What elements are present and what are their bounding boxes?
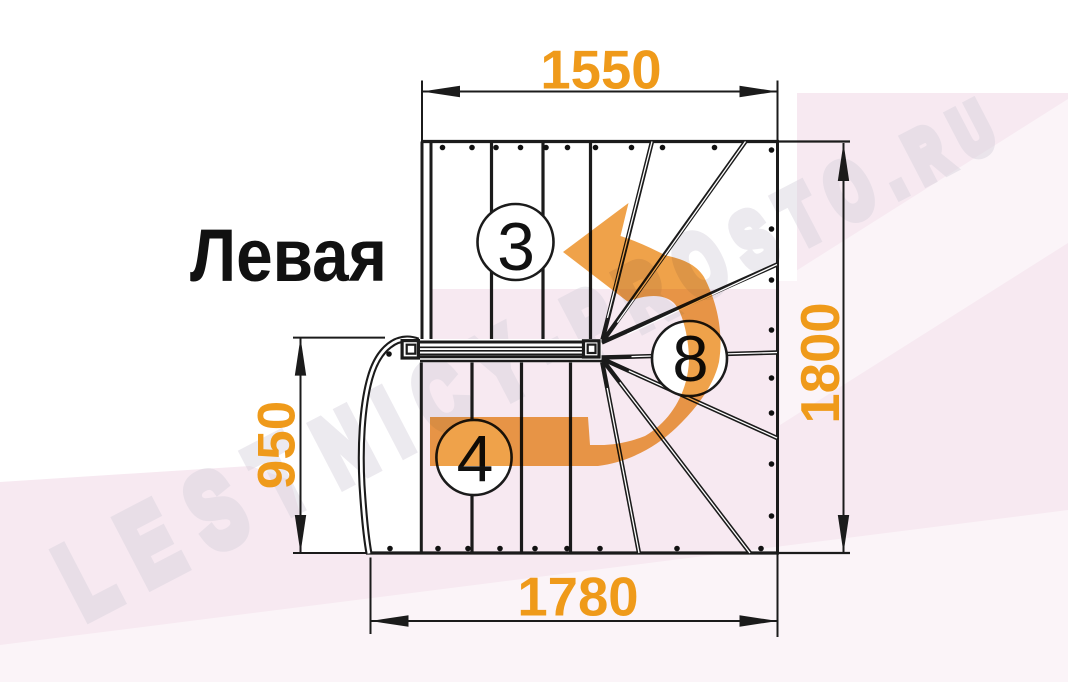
svg-text:1780: 1780 (517, 567, 638, 628)
svg-text:Левая: Левая (190, 214, 387, 297)
svg-text:950: 950 (248, 401, 307, 489)
svg-text:1550: 1550 (540, 40, 661, 101)
svg-text:1800: 1800 (790, 302, 851, 423)
svg-text:3: 3 (497, 209, 535, 285)
